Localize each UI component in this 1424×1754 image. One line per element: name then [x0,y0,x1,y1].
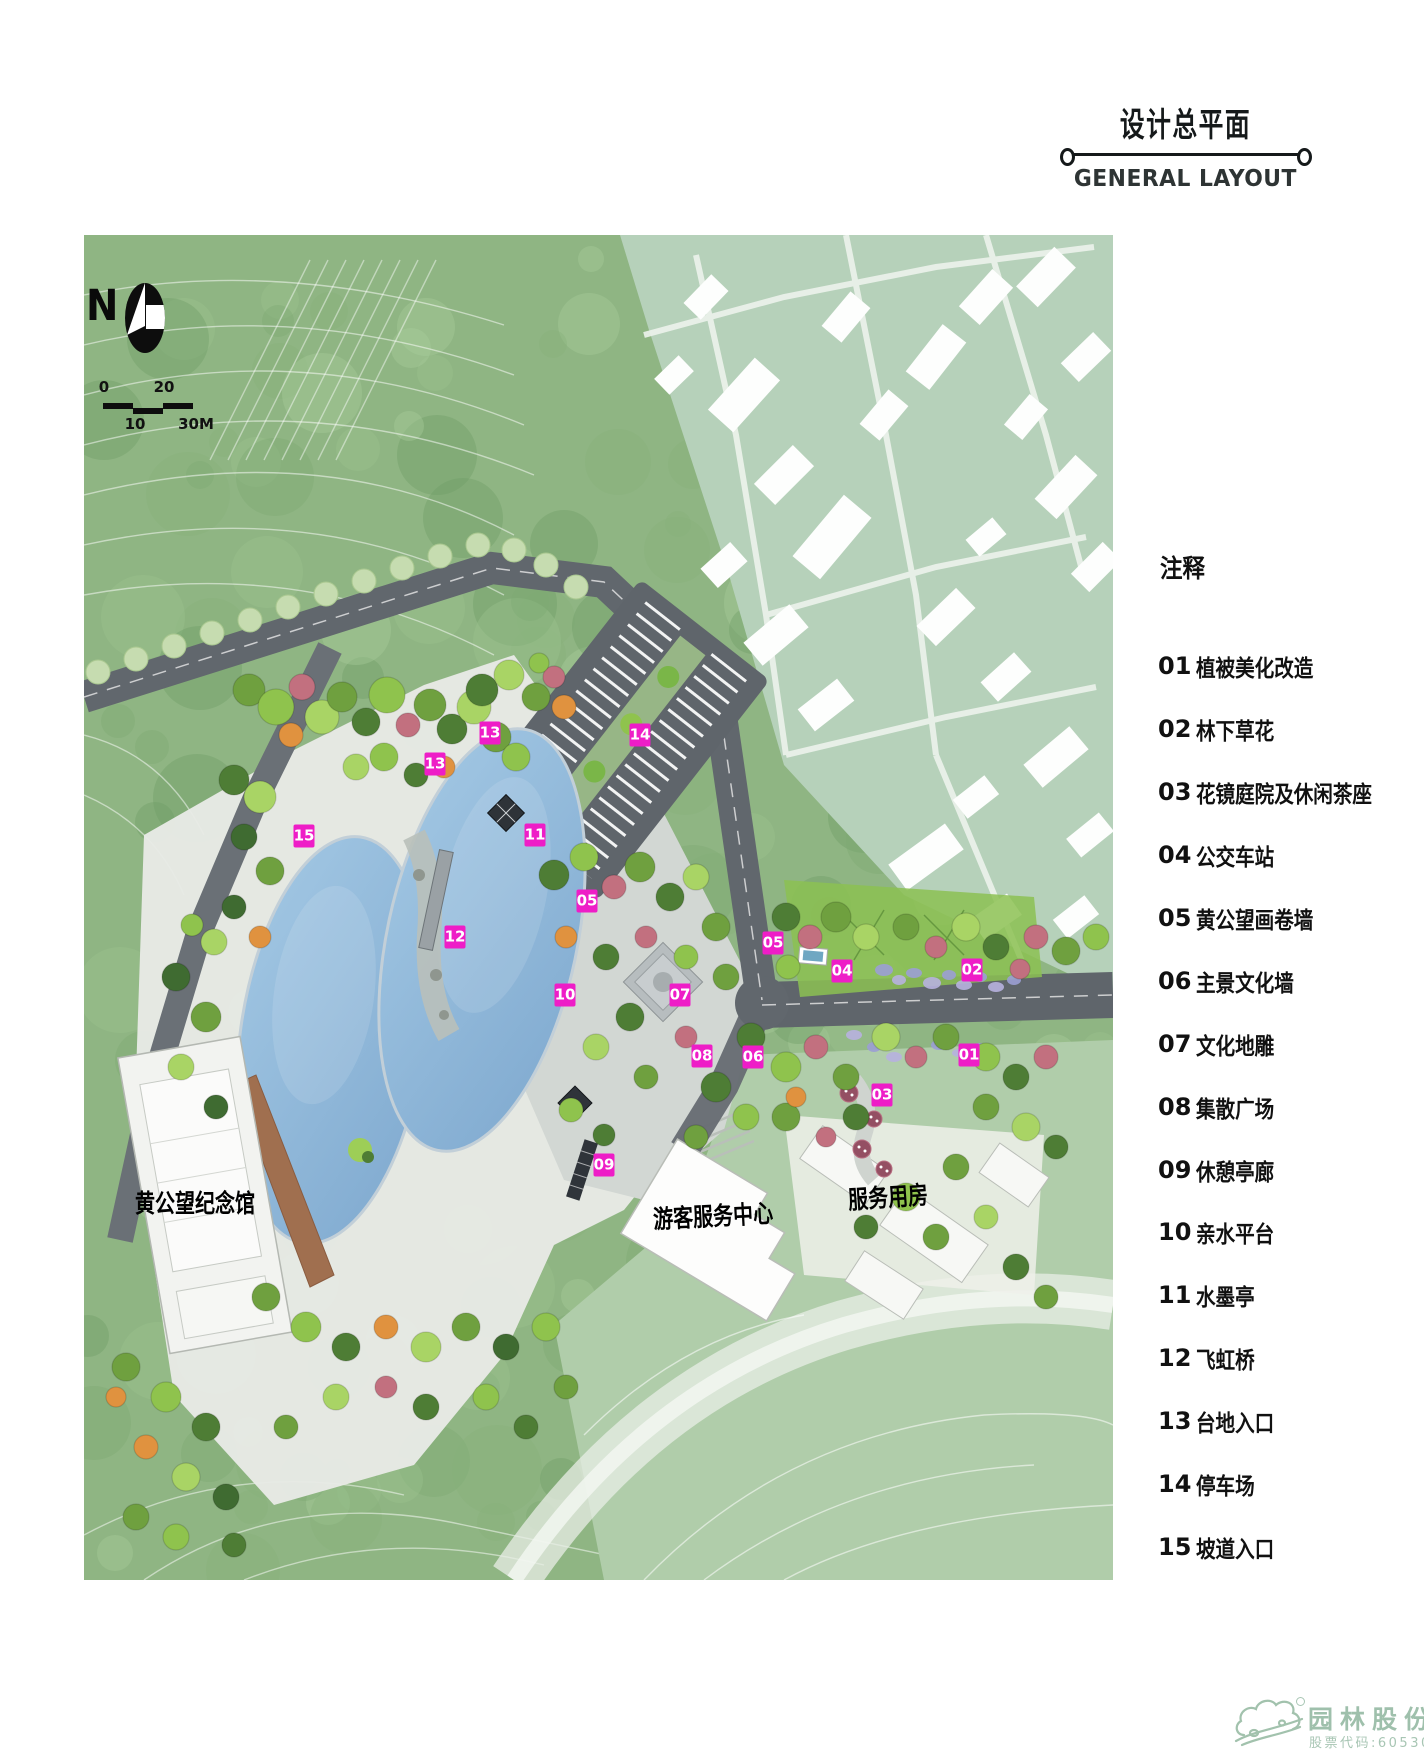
flower-patch [956,980,972,990]
tree [452,1313,480,1341]
forest-texture-blob [477,1503,515,1541]
tree [772,903,800,931]
flower-patch [906,968,922,978]
tree [502,743,530,771]
plan-sheet: 设计总平面 GENERAL LAYOUT 注释 01植被美化改造02林下草花03… [0,0,1424,1754]
tree [192,1413,220,1441]
tree [106,1387,126,1407]
legend-item-label: 林下草花 [1196,712,1274,746]
scale-label-20: 20 [154,378,175,396]
tree [168,1054,194,1080]
legend-item-label: 集散广场 [1196,1090,1274,1124]
tree [494,660,524,690]
tree [983,934,1009,960]
legend-item-label: 水墨亭 [1196,1278,1255,1312]
street-tree [86,660,110,684]
map-marker-05: 05 [577,890,598,913]
map-marker-13: 13 [480,722,501,745]
tree [804,1035,828,1059]
tree [514,1415,538,1439]
map-marker-14: 14 [630,724,651,747]
legend-item: 07文化地雕 [1158,1012,1424,1075]
tree [1012,1113,1040,1141]
street-tree [238,608,262,632]
service-building-label: 服务用房 [847,1175,929,1216]
tree [352,708,380,736]
map-marker-02: 02 [962,959,983,982]
tree [252,1283,280,1311]
map-marker-03: 03 [872,1084,893,1107]
tree [1003,1064,1029,1090]
tree [974,1205,998,1229]
street-tree [564,575,588,599]
tree [656,883,684,911]
legend-item-number: 12 [1158,1344,1196,1372]
tree [702,913,730,941]
tree [343,754,369,780]
street-tree [200,621,224,645]
legend-item: 14停车场 [1158,1453,1424,1516]
legend-item-label: 亲水平台 [1196,1215,1274,1249]
tree [332,1333,360,1361]
legend-item: 04公交车站 [1158,824,1424,887]
flower-patch [988,982,1004,992]
tree [1052,937,1080,965]
tree [219,765,249,795]
tree [289,674,315,700]
forest-texture-blob [146,452,230,536]
street-tree [162,634,186,658]
legend-item-number: 09 [1158,1156,1196,1184]
tree [616,1003,644,1031]
tree [529,653,549,673]
legend-item-label: 休憩亭廊 [1196,1153,1274,1187]
tree [258,689,294,725]
tree [771,1052,801,1082]
tree [925,936,947,958]
legend-item: 15坡道入口 [1158,1515,1424,1578]
tree [1083,924,1109,950]
street-tree [314,582,338,606]
legend-item: 06主景文化墙 [1158,949,1424,1012]
tree [821,902,851,932]
legend-item-number: 10 [1158,1218,1196,1246]
forest-texture-blob [97,1535,133,1571]
forest-texture-blob [558,293,620,355]
street-tree [534,553,558,577]
visitor-center-label: 游客服务中心 [652,1194,774,1236]
street-tree [466,533,490,557]
site-plan-drawing [84,235,1113,1580]
tree [853,924,879,950]
scale-label-0: 0 [99,378,109,396]
street-tree [276,595,300,619]
tree [191,1002,221,1032]
tree [163,1524,189,1550]
tree [249,926,271,948]
map-marker-12: 12 [445,926,466,949]
tree [369,677,405,713]
tree [713,964,739,990]
legend-item: 09休憩亭廊 [1158,1138,1424,1201]
tree [279,723,303,747]
legend-item: 13台地入口 [1158,1390,1424,1453]
map-marker-04: 04 [832,960,853,983]
legend-item-label: 植被美化改造 [1196,649,1313,683]
bus-station [798,947,827,965]
legend-item-label: 公交车站 [1196,838,1274,872]
tree [943,1154,969,1180]
legend-items: 01植被美化改造02林下草花03花镜庭院及休闲茶座04公交车站05黄公望画卷墙0… [1158,635,1424,1578]
tree [893,914,919,940]
tree [583,1034,609,1060]
legend-item-number: 11 [1158,1281,1196,1309]
tree [222,1533,246,1557]
tree [539,860,569,890]
street-tree [124,647,148,671]
tree [554,1375,578,1399]
tree [181,914,203,936]
legend-item: 10亲水平台 [1158,1201,1424,1264]
map-marker-09: 09 [594,1154,615,1177]
tree [375,1376,397,1398]
legend-item-number: 01 [1158,652,1196,680]
flower-mosaic [853,1140,871,1158]
tree [473,1384,499,1410]
map-marker-13: 13 [425,753,446,776]
legend-item-number: 15 [1158,1533,1196,1561]
legend-item-number: 06 [1158,967,1196,995]
flower-patch [892,975,906,985]
tree [733,1104,759,1130]
forest-texture-blob [644,517,710,583]
legend-item: 08集散广场 [1158,1075,1424,1138]
tree [222,895,246,919]
legend-item-label: 台地入口 [1196,1404,1274,1438]
tree [411,1332,441,1362]
title-divider-dot-left [1060,148,1075,166]
tree [231,824,257,850]
tree [123,1504,149,1530]
tree [923,1224,949,1250]
legend-item-label: 飞虹桥 [1196,1341,1255,1375]
tree [552,695,576,719]
legend-item-number: 05 [1158,904,1196,932]
legend-item-number: 08 [1158,1093,1196,1121]
legend-header: 注释 [1160,549,1210,585]
tree [973,1094,999,1120]
legend-item-number: 03 [1158,778,1196,806]
flower-mosaic [876,1161,892,1177]
tree [413,1394,439,1420]
legend-item-number: 07 [1158,1030,1196,1058]
tree [370,743,398,771]
tree [1044,1135,1068,1159]
tree [854,1215,878,1239]
title-divider [1068,153,1301,156]
legend-item: 11水墨亭 [1158,1264,1424,1327]
map-marker-05: 05 [763,932,784,955]
tree [833,1064,859,1090]
legend-item: 02林下草花 [1158,698,1424,761]
site-plan: N 0 20 10 30M 黄公望纪念馆 游客服务中心 服务用房 1314131… [84,235,1113,1580]
tree [396,713,420,737]
tree [172,1463,200,1491]
scale-label-10: 10 [125,415,146,433]
tree [493,1334,519,1360]
page-subtitle: GENERAL LAYOUT [1068,166,1303,192]
memorial-hall-label: 黄公望纪念馆 [135,1184,255,1220]
map-marker-07: 07 [670,984,691,1007]
forest-texture-blob [101,704,135,738]
street-tree [428,544,452,568]
tree [1034,1285,1058,1309]
tree [674,945,698,969]
tree [625,852,655,882]
street-tree [352,569,376,593]
legend-item-label: 坡道入口 [1196,1530,1274,1564]
forest-texture-blob [585,429,651,495]
tree [256,857,284,885]
flower-patch [942,970,956,980]
forest-texture-blob [336,427,380,471]
tree [466,674,498,706]
flower-patch [886,1052,902,1062]
tree [323,1384,349,1410]
tree [559,1098,583,1122]
tree [213,1484,239,1510]
flower-patch [875,964,893,976]
forest-texture-blob [578,246,604,272]
forest-texture-blob [539,330,567,358]
tree [786,1087,806,1107]
tree [816,1127,836,1147]
legend-item-number: 13 [1158,1407,1196,1435]
map-marker-11: 11 [525,824,546,847]
tree [1003,1254,1029,1280]
flower-patch [846,1030,862,1040]
tree [555,926,577,948]
tree [1010,959,1030,979]
street-tree [390,556,414,580]
forest-texture-blob [236,438,314,516]
tree [952,913,980,941]
map-marker-06: 06 [743,1046,764,1069]
tree [134,1435,158,1459]
tree [683,864,709,890]
tree [274,1415,298,1439]
legend-item-label: 花镜庭院及休闲茶座 [1196,775,1372,809]
legend-item-number: 04 [1158,841,1196,869]
legend-item: 03花镜庭院及休闲茶座 [1158,761,1424,824]
tree [291,1312,321,1342]
legend-item: 12飞虹桥 [1158,1327,1424,1390]
legend-item-number: 02 [1158,715,1196,743]
tree [933,1024,959,1050]
tree [684,1125,708,1149]
registered-mark-icon [1296,1697,1305,1706]
tree [593,1124,615,1146]
tree [204,1095,228,1119]
map-marker-10: 10 [555,984,576,1007]
map-marker-15: 15 [294,825,315,848]
tree [112,1353,140,1381]
tree [634,1065,658,1089]
legend-item-label: 停车场 [1196,1467,1255,1501]
legend-item: 05黄公望画卷墙 [1158,887,1424,950]
tree [522,683,550,711]
forest-texture-blob [310,292,348,330]
street-tree [502,538,526,562]
legend-item-number: 14 [1158,1470,1196,1498]
tree [570,843,598,871]
legend-item: 01植被美化改造 [1158,635,1424,698]
map-marker-01: 01 [959,1044,980,1067]
legend-item-label: 文化地雕 [1196,1027,1274,1061]
tree [201,929,227,955]
tree [905,1046,927,1068]
flower-patch [923,977,941,989]
tree [374,1315,398,1339]
tree [872,1023,900,1051]
company-stock-code: 股票代码:605303 [1309,1732,1424,1751]
tree [843,1104,869,1130]
north-label: N [86,281,118,331]
tree [1034,1045,1058,1069]
tree [327,682,357,712]
scale-label-30m: 30M [178,415,214,433]
tree [162,963,190,991]
tree [532,1313,560,1341]
tree [593,944,619,970]
legend-item-label: 主景文化墙 [1196,964,1294,998]
tree [414,689,446,721]
tree [798,925,822,949]
page-title: 设计总平面 [1068,98,1303,146]
company-logo-name: 园林股份 [1308,1700,1424,1736]
tree [244,781,276,813]
tree [151,1382,181,1412]
title-divider-dot-right [1297,148,1312,166]
map-marker-08: 08 [692,1045,713,1068]
tree [776,955,800,979]
tree [1024,925,1048,949]
tree [635,926,657,948]
tree [602,875,626,899]
legend-item-label: 黄公望画卷墙 [1196,901,1313,935]
tree [701,1072,731,1102]
forest-texture-blob [262,305,294,337]
